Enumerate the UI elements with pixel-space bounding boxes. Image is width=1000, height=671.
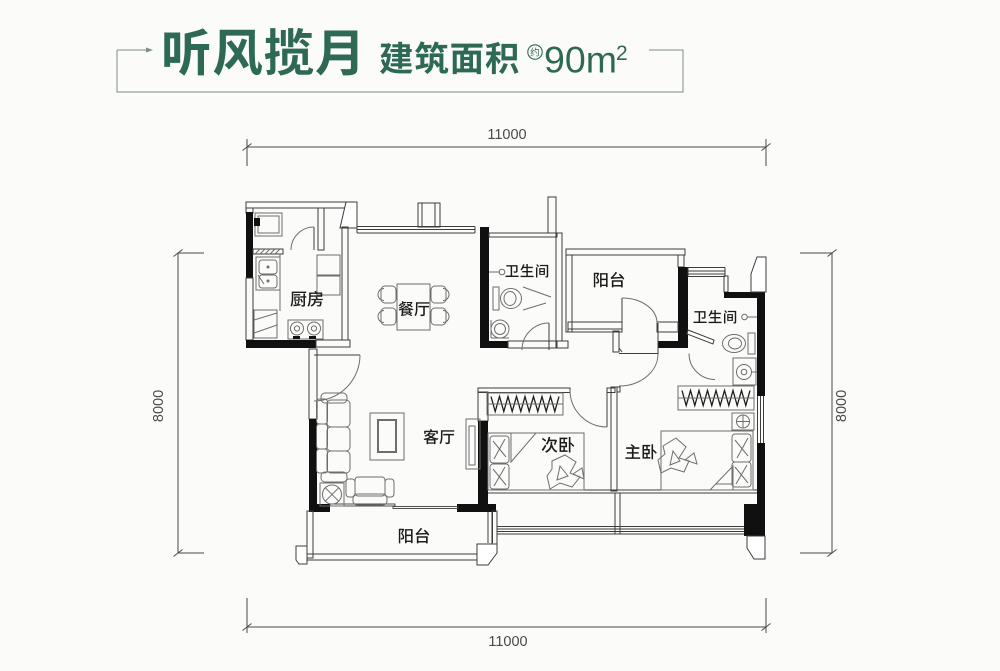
- svg-text:2: 2: [616, 42, 628, 65]
- svg-text:8000: 8000: [834, 390, 850, 422]
- svg-text:8000: 8000: [151, 390, 167, 422]
- svg-text:11000: 11000: [487, 127, 526, 143]
- svg-text:11000: 11000: [488, 634, 527, 650]
- svg-text:90m: 90m: [544, 39, 617, 81]
